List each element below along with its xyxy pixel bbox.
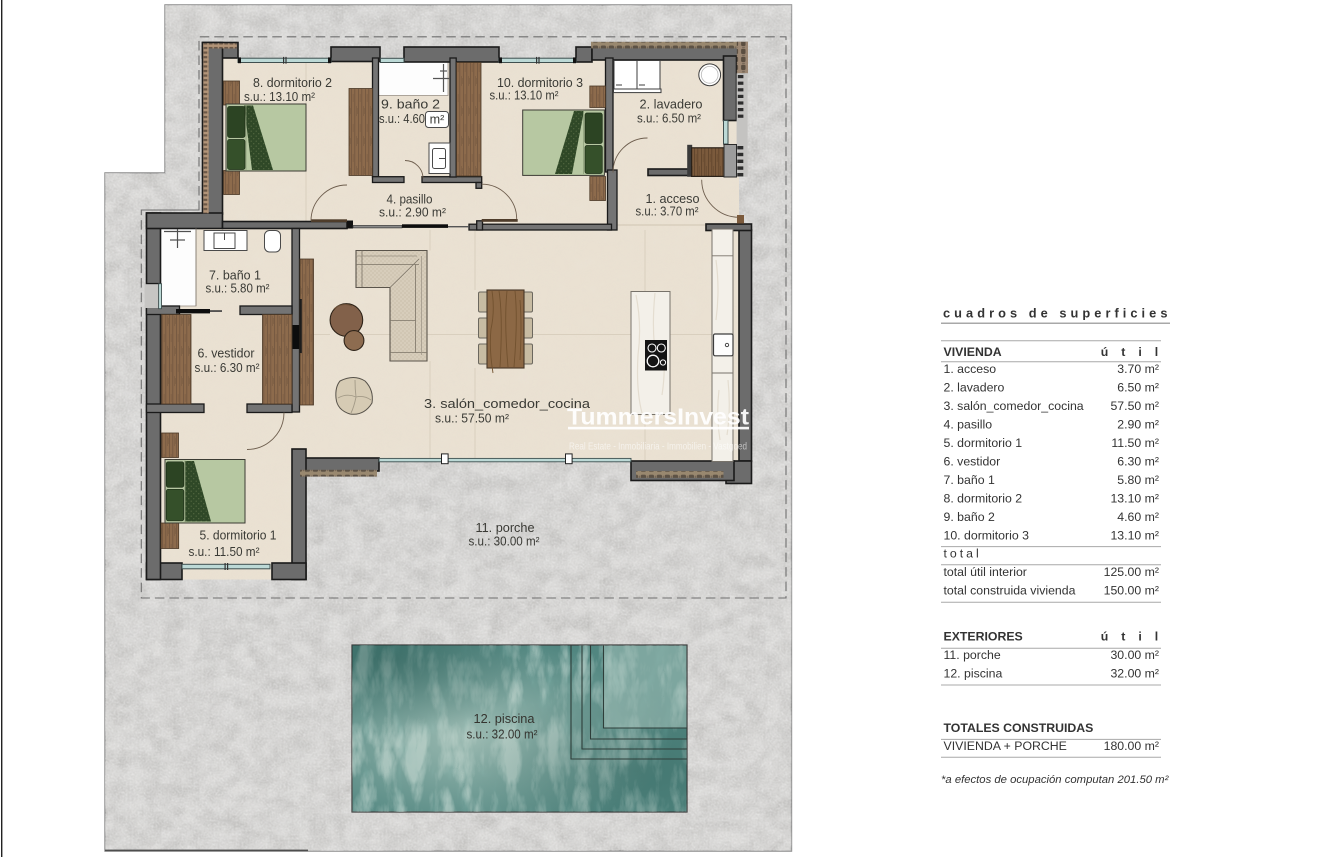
svg-text:m²: m² xyxy=(430,113,445,127)
svg-text:12. piscina: 12. piscina xyxy=(944,667,1003,681)
svg-text:4.60 m²: 4.60 m² xyxy=(1117,510,1159,524)
svg-text:7. baño 1: 7. baño 1 xyxy=(944,473,995,487)
svg-text:3.70 m²: 3.70 m² xyxy=(1117,362,1159,376)
svg-text:30.00 m²: 30.00 m² xyxy=(1110,648,1159,662)
svg-text:s.u.: 57.50 m²: s.u.: 57.50 m² xyxy=(435,412,509,426)
svg-text:TummersInvest: TummersInvest xyxy=(567,404,749,430)
svg-text:9. baño 2: 9. baño 2 xyxy=(381,98,440,112)
svg-text:8. dormitorio 2: 8. dormitorio 2 xyxy=(944,492,1023,506)
svg-text:s.u.: 4.60: s.u.: 4.60 xyxy=(379,112,425,126)
svg-text:s.u.: 3.70 m²: s.u.: 3.70 m² xyxy=(636,205,699,219)
svg-text:cuadros de superficies: cuadros de superficies xyxy=(943,306,1172,321)
svg-text:3. salón_comedor_cocina: 3. salón_comedor_cocina xyxy=(424,397,590,411)
svg-text:TOTALES CONSTRUIDAS: TOTALES CONSTRUIDAS xyxy=(944,721,1094,735)
svg-text:5. dormitorio 1: 5. dormitorio 1 xyxy=(200,529,277,543)
svg-text:7. baño 1: 7. baño 1 xyxy=(209,269,261,283)
svg-text:9. baño 2: 9. baño 2 xyxy=(944,510,995,524)
svg-text:s.u.: 13.10 m²: s.u.: 13.10 m² xyxy=(490,89,559,103)
svg-text:2. lavadero: 2. lavadero xyxy=(944,381,1005,395)
svg-text:2. lavadero: 2. lavadero xyxy=(640,98,703,112)
svg-text:total útil interior: total útil interior xyxy=(944,565,1027,579)
svg-text:s.u.: 32.00 m²: s.u.: 32.00 m² xyxy=(467,728,538,742)
svg-text:s.u.: 5.80 m²: s.u.: 5.80 m² xyxy=(206,282,270,296)
svg-text:ú t i l: ú t i l xyxy=(1101,630,1163,644)
svg-text:6. vestidor: 6. vestidor xyxy=(198,347,255,361)
svg-text:11.50 m²: 11.50 m² xyxy=(1111,436,1159,450)
svg-text:150.00 m²: 150.00 m² xyxy=(1104,584,1159,598)
svg-text:3. salón_comedor_cocina: 3. salón_comedor_cocina xyxy=(944,399,1084,413)
svg-text:5.80 m²: 5.80 m² xyxy=(1117,473,1159,487)
svg-text:VIVIENDA: VIVIENDA xyxy=(944,345,1002,359)
svg-text:EXTERIORES: EXTERIORES xyxy=(944,630,1023,644)
svg-text:6.30 m²: 6.30 m² xyxy=(1117,455,1159,469)
svg-text:180.00 m²: 180.00 m² xyxy=(1104,739,1159,753)
svg-text:4. pasillo: 4. pasillo xyxy=(387,193,433,207)
svg-text:2.90 m²: 2.90 m² xyxy=(1117,418,1159,432)
svg-text:total: total xyxy=(944,547,982,561)
svg-text:6. vestidor: 6. vestidor xyxy=(944,455,1001,469)
svg-text:57.50 m²: 57.50 m² xyxy=(1110,399,1159,413)
svg-text:Real Estate - Inmobiliaria - I: Real Estate - Inmobiliaria - Immobilien … xyxy=(569,441,747,452)
svg-text:1. acceso: 1. acceso xyxy=(944,362,997,376)
svg-text:s.u.: 11.50 m²: s.u.: 11.50 m² xyxy=(189,545,260,559)
svg-text:s.u.: 13.10 m²: s.u.: 13.10 m² xyxy=(244,90,315,104)
svg-text:13.10 m²: 13.10 m² xyxy=(1110,492,1159,506)
svg-text:ú t i l: ú t i l xyxy=(1101,345,1163,359)
svg-text:125.00 m²: 125.00 m² xyxy=(1104,565,1159,579)
svg-text:5. dormitorio 1: 5. dormitorio 1 xyxy=(944,436,1023,450)
svg-text:12. piscina: 12. piscina xyxy=(474,712,535,726)
svg-text:s.u.: 30.00 m²: s.u.: 30.00 m² xyxy=(469,535,540,549)
svg-text:VIVIENDA + PORCHE: VIVIENDA + PORCHE xyxy=(944,739,1067,753)
svg-text:13.10 m²: 13.10 m² xyxy=(1110,529,1159,543)
svg-text:s.u.: 6.50 m²: s.u.: 6.50 m² xyxy=(637,112,701,126)
svg-text:s.u.: 2.90 m²: s.u.: 2.90 m² xyxy=(379,206,446,220)
svg-text:*a efectos de ocupación comput: *a efectos de ocupación computan 201.50 … xyxy=(941,774,1170,786)
svg-text:s.u.: 6.30 m²: s.u.: 6.30 m² xyxy=(195,361,260,375)
svg-text:32.00 m²: 32.00 m² xyxy=(1110,667,1159,681)
svg-text:11. porche: 11. porche xyxy=(476,521,535,535)
svg-text:10. dormitorio 3: 10. dormitorio 3 xyxy=(944,529,1030,543)
svg-text:total construida vivienda: total construida vivienda xyxy=(944,584,1076,598)
svg-text:4. pasillo: 4. pasillo xyxy=(944,418,993,432)
svg-text:6.50 m²: 6.50 m² xyxy=(1117,381,1159,395)
svg-text:11. porche: 11. porche xyxy=(944,648,1001,662)
svg-text:8. dormitorio 2: 8. dormitorio 2 xyxy=(253,76,332,90)
